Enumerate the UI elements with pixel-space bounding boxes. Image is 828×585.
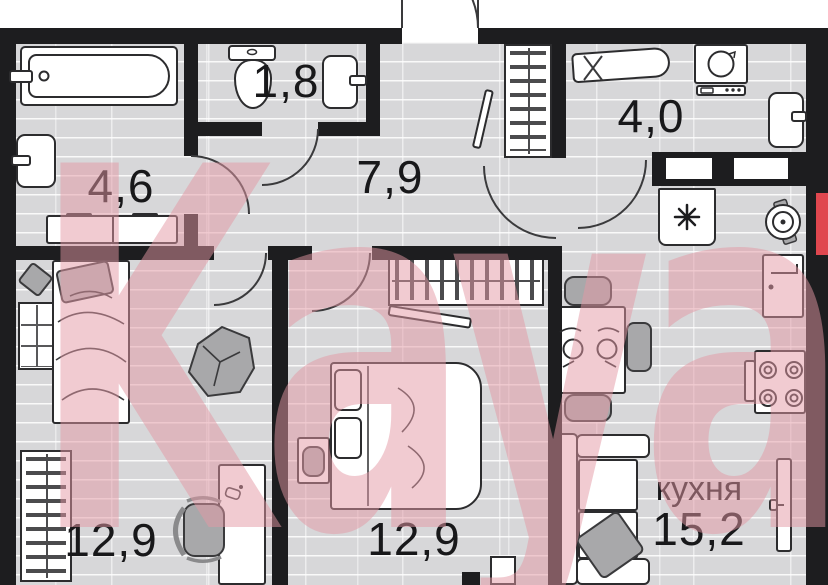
bed-single-blanket bbox=[56, 291, 126, 400]
stove-burners bbox=[760, 362, 802, 406]
dining-table-setting bbox=[560, 328, 619, 367]
room-label-bedroom-left: 12,9 bbox=[64, 517, 158, 563]
entrance-jamb bbox=[402, 0, 478, 28]
floor-plan: 4,6 1,8 7,9 4,0 12,9 12,9 кухня 15,2 Kay… bbox=[0, 0, 828, 585]
laundry-sink-faucet bbox=[792, 112, 806, 121]
bathtub-fittings bbox=[10, 71, 49, 82]
watermark-accent-bar bbox=[816, 193, 828, 255]
bed-double-blanket bbox=[368, 366, 424, 506]
bathroom-sink-faucet bbox=[12, 156, 30, 165]
kitchen-round-sink bbox=[766, 199, 800, 245]
bean-bag bbox=[189, 327, 254, 396]
hall-kitchen-door-arc bbox=[484, 166, 556, 238]
room-label-laundry: 4,0 bbox=[618, 93, 685, 139]
room-name-kitchen: кухня bbox=[656, 472, 742, 506]
office-chair-back bbox=[176, 498, 222, 562]
hob-star bbox=[675, 205, 699, 229]
toilet-flush-button bbox=[248, 50, 257, 55]
room-label-bathroom: 4,6 bbox=[88, 163, 155, 209]
bedroom-middle-door-arc bbox=[312, 253, 370, 311]
fridge-door-mark bbox=[769, 264, 798, 290]
nightstand-item bbox=[303, 447, 324, 476]
wardrobe-shelf-diagonal bbox=[389, 306, 471, 328]
washing-machine-controls bbox=[701, 88, 741, 93]
room-label-hallway: 7,9 bbox=[357, 154, 424, 200]
room-label-bedroom-middle: 12,9 bbox=[367, 516, 461, 562]
toilet-door-arc bbox=[262, 129, 318, 185]
washing-machine-drum bbox=[709, 52, 736, 77]
desk-items bbox=[225, 485, 243, 500]
bedroom-left-door-arc bbox=[214, 253, 266, 305]
entrance-door-arc bbox=[402, 0, 478, 28]
bathroom-door-arc bbox=[191, 156, 249, 214]
hallway-diagonal-item bbox=[473, 90, 493, 148]
kitchen-door-arc bbox=[578, 160, 646, 228]
toilet-sink-faucet bbox=[350, 76, 366, 85]
ironing-board-legs bbox=[584, 56, 602, 80]
room-label-toilet: 1,8 bbox=[253, 58, 320, 104]
room-label-kitchen: 15,2 bbox=[652, 506, 746, 552]
